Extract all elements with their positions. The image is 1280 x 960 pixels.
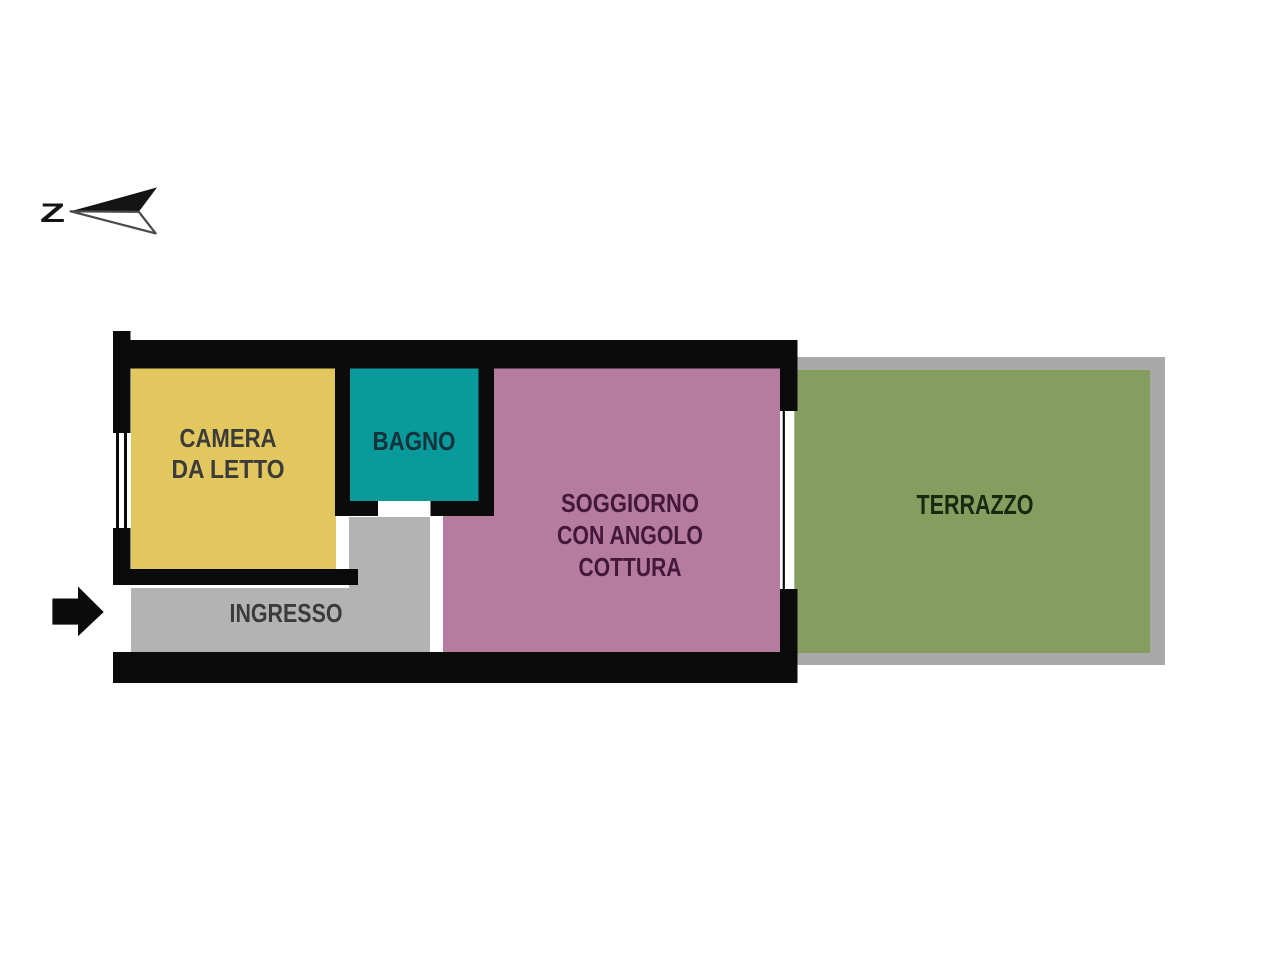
svg-text:SOGGIORNO: SOGGIORNO: [561, 488, 699, 518]
svg-text:TERRAZZO: TERRAZZO: [917, 489, 1034, 520]
svg-text:Z: Z: [40, 198, 65, 228]
svg-text:COTTURA: COTTURA: [579, 552, 682, 582]
svg-text:CAMERA: CAMERA: [180, 423, 277, 453]
svg-text:DA LETTO: DA LETTO: [172, 454, 285, 484]
svg-text:CON ANGOLO: CON ANGOLO: [557, 520, 703, 550]
svg-text:INGRESSO: INGRESSO: [230, 598, 343, 628]
svg-text:BAGNO: BAGNO: [373, 426, 456, 456]
